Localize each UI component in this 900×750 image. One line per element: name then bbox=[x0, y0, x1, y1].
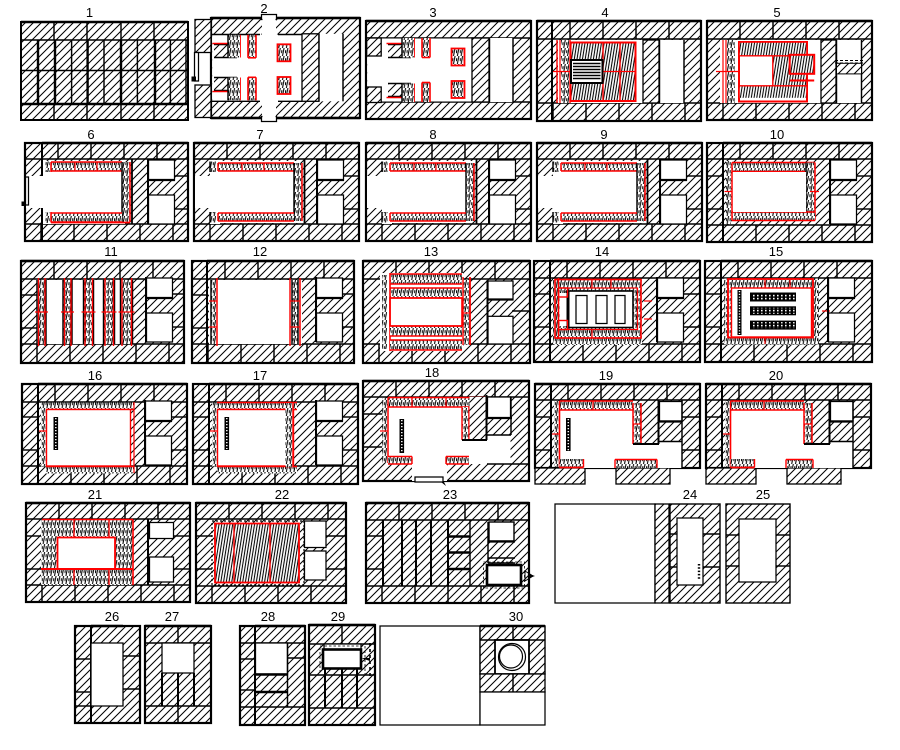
svg-text:30: 30 bbox=[509, 609, 523, 624]
svg-text:14: 14 bbox=[595, 244, 609, 259]
svg-text:25: 25 bbox=[756, 487, 770, 502]
svg-text:4: 4 bbox=[601, 5, 608, 20]
svg-text:29: 29 bbox=[331, 609, 345, 624]
svg-text:18: 18 bbox=[425, 365, 439, 380]
svg-text:2: 2 bbox=[260, 1, 267, 16]
svg-text:7: 7 bbox=[256, 127, 263, 142]
svg-text:28: 28 bbox=[261, 609, 275, 624]
svg-text:19: 19 bbox=[599, 368, 613, 383]
svg-text:11: 11 bbox=[104, 244, 118, 259]
svg-text:8: 8 bbox=[429, 127, 436, 142]
svg-text:15: 15 bbox=[769, 244, 783, 259]
svg-text:6: 6 bbox=[87, 127, 94, 142]
svg-text:10: 10 bbox=[770, 127, 784, 142]
svg-text:22: 22 bbox=[275, 487, 289, 502]
svg-text:21: 21 bbox=[88, 487, 102, 502]
svg-text:9: 9 bbox=[600, 127, 607, 142]
svg-text:5: 5 bbox=[773, 5, 780, 20]
svg-text:17: 17 bbox=[253, 368, 267, 383]
svg-text:13: 13 bbox=[424, 244, 438, 259]
svg-text:27: 27 bbox=[165, 609, 179, 624]
svg-text:3: 3 bbox=[429, 5, 436, 20]
svg-text:23: 23 bbox=[443, 487, 457, 502]
svg-text:16: 16 bbox=[88, 368, 102, 383]
svg-text:12: 12 bbox=[253, 244, 267, 259]
svg-text:1: 1 bbox=[86, 5, 93, 20]
svg-text:26: 26 bbox=[105, 609, 119, 624]
svg-text:20: 20 bbox=[769, 368, 783, 383]
svg-text:24: 24 bbox=[683, 487, 697, 502]
